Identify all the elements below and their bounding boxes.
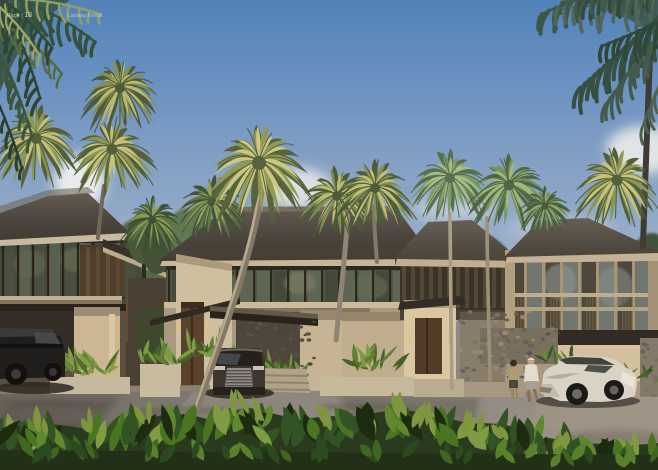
- svg-text:Page | 13: Page | 13: [7, 12, 32, 19]
- svg-text:Lantang Exhibit: Lantang Exhibit: [68, 13, 103, 19]
